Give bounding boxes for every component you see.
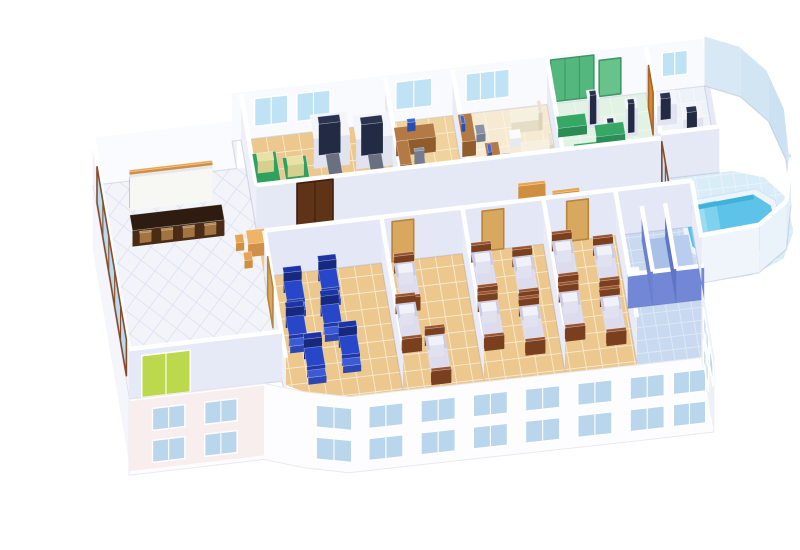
utility-machine-1-slot (660, 92, 671, 120)
corridor-chair-3 (243, 252, 252, 269)
facade-window (421, 397, 455, 423)
office-chair-back (414, 147, 424, 166)
facade-window (205, 431, 237, 457)
facade-window (630, 374, 664, 400)
facade-window (205, 399, 237, 425)
facade-window (526, 418, 560, 444)
facade-window (316, 437, 352, 462)
scanner-1-slot (318, 114, 341, 155)
exam-bed-1-pillow (256, 151, 274, 173)
exam-bed-2-pillow (286, 155, 304, 177)
facade-window (153, 437, 185, 463)
clinic-floorplan-3d (0, 0, 800, 550)
sanitary-north-wall (615, 181, 692, 236)
facade-window (153, 405, 185, 431)
physio-table-1 (556, 113, 587, 137)
desk-panel-2 (161, 228, 173, 241)
corridor-chair-1 (235, 234, 244, 251)
facade-window (473, 423, 507, 449)
physio-machine-1-slot (589, 90, 596, 124)
pool-near-wall-3 (701, 225, 759, 284)
facade-window (473, 391, 507, 417)
imaging-double-door (297, 179, 333, 226)
desk-panel-4 (204, 222, 216, 235)
facade-window (369, 435, 403, 461)
office-window (396, 78, 432, 110)
facade-window (578, 412, 612, 438)
floorplan-stage (0, 0, 800, 550)
facade-window (578, 380, 612, 406)
facade-window (421, 429, 455, 455)
desk-panel-1 (139, 230, 151, 243)
imaging-window-1 (255, 95, 288, 127)
desk-panel-3 (183, 225, 195, 238)
couch-side-table (509, 129, 521, 147)
facade-window (316, 405, 352, 430)
utility-south-wall (661, 127, 720, 180)
pool-ring-wall-1 (705, 34, 741, 97)
facade-window (673, 369, 705, 395)
facade-window (630, 406, 664, 432)
staff-window (466, 69, 509, 102)
facade-window (526, 386, 560, 412)
scanner-2-slot (360, 115, 383, 156)
physio-wall-cabinet-2 (599, 58, 621, 97)
entry-green-doors (142, 350, 191, 398)
utility-window (662, 50, 687, 77)
facade-window (369, 403, 403, 429)
facade-window (673, 401, 705, 427)
physio-machine-3-slot (627, 99, 634, 133)
office-monitor (407, 118, 416, 132)
